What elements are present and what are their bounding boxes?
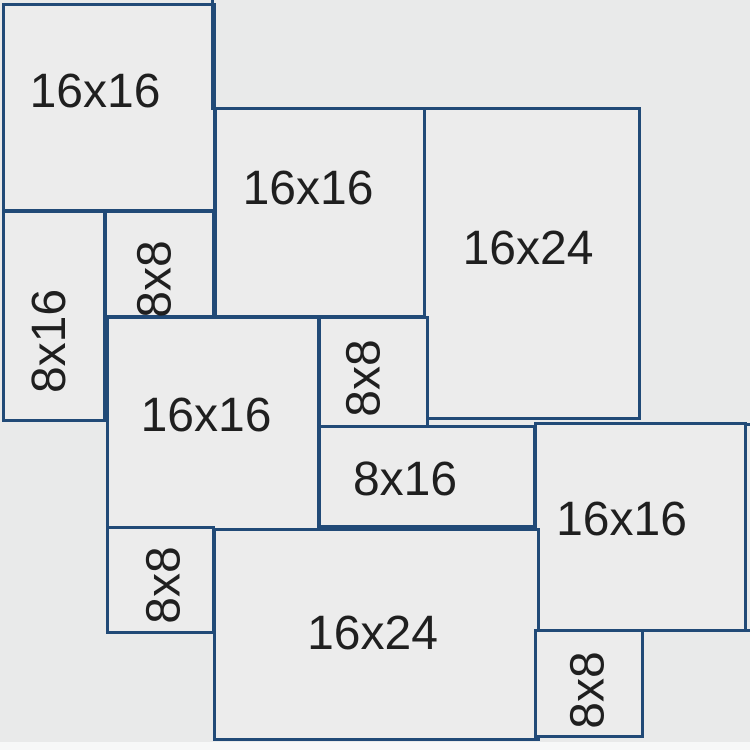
photo-bottom-margin [0,742,750,750]
tile-size-label: 8x8 [131,240,179,317]
tile-size-label: 16x24 [307,610,438,658]
tile-16x16-top-middle: 16x16 [214,107,430,318]
tile-16x16-right: 16x16 [534,422,747,632]
tile-size-label: 16x16 [30,68,161,116]
tile-16x24-bottom: 16x24 [213,528,540,741]
tile-size-label: 8x8 [140,546,188,623]
tile-size-label: 16x16 [141,392,272,440]
tile-size-label: 8x8 [340,339,388,416]
tile-size-label: 8x8 [565,651,613,728]
paver-pattern-diagram: 16x1616x1616x248x168x816x168x88x1616x168… [0,0,750,750]
tile-8x8-bottom-right: 8x8 [534,629,644,738]
tile-16x16-middle: 16x16 [106,316,320,531]
tile-size-label: 16x24 [463,225,594,273]
tile-16x16-top-left: 16x16 [2,3,216,212]
pattern-edge-line-top-edge-extension [211,0,214,110]
tile-8x8-middle: 8x8 [318,316,429,428]
tile-size-label: 16x16 [243,165,374,213]
tile-size-label: 16x16 [556,496,687,544]
tile-16x24-upper-right: 16x24 [423,107,641,420]
tile-8x8-upper: 8x8 [104,210,215,318]
tile-size-label: 8x16 [26,289,74,393]
tile-8x16-middle: 8x16 [318,425,536,528]
tile-8x8-lower-left: 8x8 [106,526,215,634]
tile-8x16-left: 8x16 [2,210,106,422]
tile-size-label: 8x16 [353,456,457,504]
